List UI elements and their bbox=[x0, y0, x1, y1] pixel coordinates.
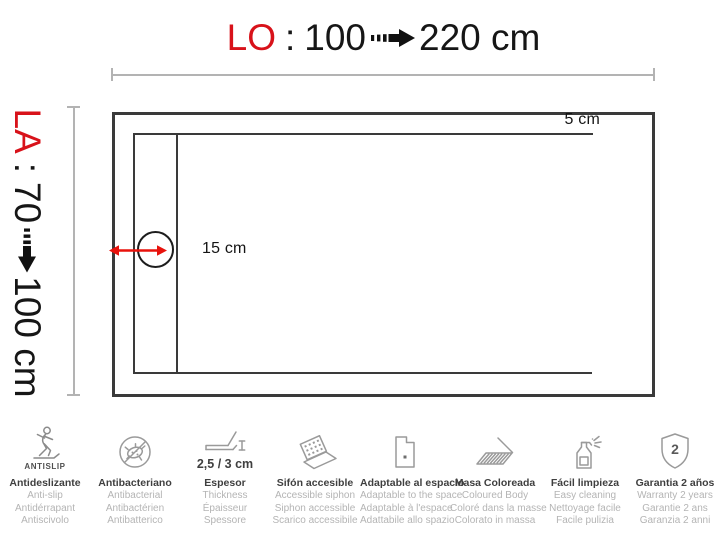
feature-label-en: Thickness bbox=[180, 490, 270, 503]
feature-label-en: Warranty 2 years bbox=[630, 490, 720, 503]
feature-label-fr: Garantie 2 ans bbox=[630, 503, 720, 516]
separator: : bbox=[6, 163, 48, 173]
feature-label-fr: Siphon accessible bbox=[270, 503, 360, 516]
feature-label-en: Coloured Body bbox=[450, 490, 540, 503]
length-dimension-title: LO : 100 220 cm bbox=[112, 14, 655, 62]
drain-distance-callout: 15 cm bbox=[202, 240, 247, 258]
feature-label-fr: Nettoyage facile bbox=[540, 503, 630, 516]
feature-label-en: Accessible siphon bbox=[270, 490, 360, 503]
feature-label: Fácil limpieza bbox=[540, 477, 630, 490]
feature-siphon: Sifón accesible Accessible siphon Siphon… bbox=[270, 414, 360, 528]
border-width-callout: 5 cm bbox=[540, 111, 600, 129]
drain-distance-arrow-icon bbox=[109, 243, 167, 258]
drain-channel-line bbox=[176, 133, 178, 374]
feature-easy-cleaning: Fácil limpieza Easy cleaning Nettoyage f… bbox=[540, 414, 630, 528]
separator: : bbox=[285, 17, 295, 59]
width-from-value: 70 bbox=[6, 182, 48, 223]
warranty-years-badge: 2 bbox=[671, 441, 679, 457]
feature-label: Masa Coloreada bbox=[450, 477, 540, 490]
feature-colored-body: Masa Coloreada Coloured Body Coloré dans… bbox=[450, 414, 540, 528]
siphon-icon bbox=[289, 435, 341, 471]
feature-label: Antideslizante bbox=[0, 477, 90, 490]
length-from-value: 100 bbox=[304, 17, 366, 59]
width-label: LA bbox=[6, 108, 48, 153]
feature-label-fr: Antibactérien bbox=[90, 503, 180, 516]
width-to-value: 100 cm bbox=[6, 276, 48, 397]
length-measure-line bbox=[111, 68, 655, 81]
tray-outline bbox=[112, 112, 655, 397]
feature-thickness: 2,5 / 3 cm Espesor Thickness Épaisseur S… bbox=[180, 414, 270, 528]
thickness-icon bbox=[202, 425, 248, 455]
feature-label: Sifón accesible bbox=[270, 477, 360, 490]
easy-cleaning-icon bbox=[565, 431, 605, 471]
width-dimension-title: LA : 70 100 cm bbox=[3, 108, 51, 397]
feature-label: Adaptable al espacio bbox=[360, 477, 450, 490]
tray-inner-bottom-line bbox=[133, 372, 592, 374]
feature-label-it: Antiscivolo bbox=[0, 515, 90, 528]
feature-label-en: Antibacterial bbox=[90, 490, 180, 503]
feature-label: Espesor bbox=[180, 477, 270, 490]
feature-label-it: Antibatterico bbox=[90, 515, 180, 528]
feature-label-fr: Adaptable à l'espace bbox=[360, 503, 450, 516]
feature-label: Garantia 2 años bbox=[630, 477, 720, 490]
feature-label-it: Garanzia 2 anni bbox=[630, 515, 720, 528]
length-to-value: 220 cm bbox=[419, 17, 540, 59]
feature-antibacterial: Antibacteriano Antibacterial Antibactéri… bbox=[90, 414, 180, 528]
feature-label-en: Adaptable to the space bbox=[360, 490, 450, 503]
tray-inner-top-line bbox=[133, 133, 593, 135]
feature-strip: ANTISLIP Antideslizante Anti-slip Antidé… bbox=[0, 414, 720, 528]
feature-warranty: 2 Garantia 2 años Warranty 2 years Garan… bbox=[630, 414, 720, 528]
width-measure-line bbox=[67, 106, 80, 396]
feature-label-fr: Épaisseur bbox=[180, 503, 270, 516]
feature-antislip: ANTISLIP Antideslizante Anti-slip Antidé… bbox=[0, 414, 90, 528]
feature-label-fr: Antidérrapant bbox=[0, 503, 90, 516]
antislip-icon bbox=[28, 425, 62, 461]
feature-label-it: Adattabile allo spazio bbox=[360, 515, 450, 528]
antibacterial-icon bbox=[116, 433, 154, 471]
feature-label-fr: Coloré dans la masse bbox=[450, 503, 540, 516]
antislip-caption: ANTISLIP bbox=[24, 462, 65, 471]
range-arrow-icon bbox=[370, 26, 416, 50]
adaptable-icon bbox=[389, 433, 421, 471]
feature-label: Antibacteriano bbox=[90, 477, 180, 490]
feature-label-it: Scarico accessibile bbox=[270, 515, 360, 528]
feature-label-en: Easy cleaning bbox=[540, 490, 630, 503]
colored-body-icon bbox=[472, 433, 518, 471]
thickness-caption: 2,5 / 3 cm bbox=[197, 457, 253, 471]
feature-adaptable: Adaptable al espacio Adaptable to the sp… bbox=[360, 414, 450, 528]
feature-label-it: Spessore bbox=[180, 515, 270, 528]
feature-label-it: Colorato in massa bbox=[450, 515, 540, 528]
feature-label-it: Facile pulizia bbox=[540, 515, 630, 528]
range-arrow-icon bbox=[15, 227, 39, 273]
length-label: LO bbox=[227, 17, 276, 59]
feature-label-en: Anti-slip bbox=[0, 490, 90, 503]
